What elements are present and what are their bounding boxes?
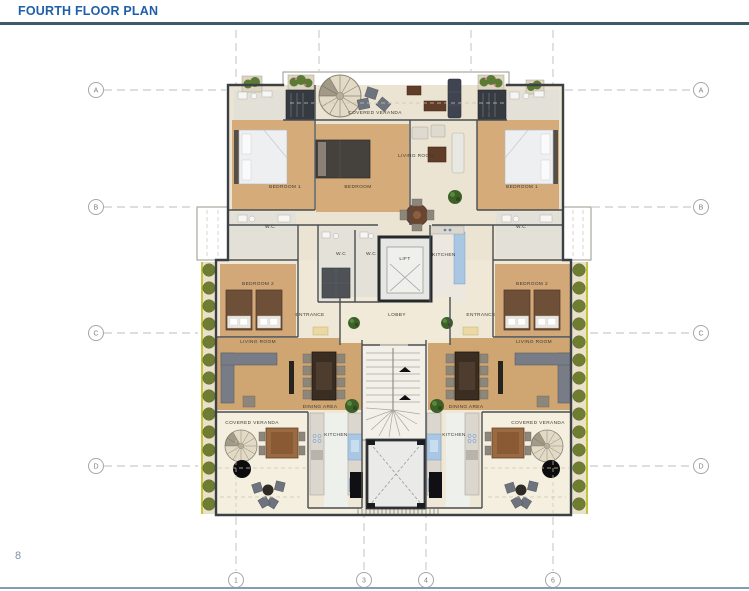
grid-marker-row-b-left: B — [89, 200, 104, 215]
wardrobe — [478, 90, 506, 120]
room-label-bedroom-middle: BEDROOM — [344, 184, 371, 190]
door-mat — [463, 327, 478, 335]
room-label-veranda-bottom-left: COVERED VERANDA — [225, 420, 279, 426]
svg-text:C: C — [93, 331, 98, 338]
armchair — [412, 127, 428, 139]
grid-marker-row-b-right: B — [694, 200, 709, 215]
room-label-living-bottom-right: LIVING ROOM — [516, 339, 552, 345]
room-label-bedroom2-right: BEDROOM 2 — [516, 281, 548, 287]
footer-rule — [0, 587, 749, 589]
door-mat — [313, 327, 328, 335]
entrance-hatch — [358, 509, 438, 514]
room-label-dining-right: DINING AREA — [449, 404, 484, 410]
room-label-wc-mid-right: W.C — [516, 224, 526, 230]
grid-marker-row-a-left: A — [89, 83, 104, 98]
svg-text:4: 4 — [424, 578, 428, 585]
room-label-wc-top-right: W.C — [485, 109, 495, 115]
coffee-table — [424, 101, 446, 111]
floor-plan-drawing: A B C D A B C D 1 3 4 6 — [0, 0, 749, 591]
room-label-lobby: LOBBY — [388, 312, 406, 318]
side-table — [407, 86, 421, 95]
page-number: 8 — [15, 550, 21, 562]
svg-text:A: A — [94, 88, 99, 95]
dark-planter — [429, 472, 442, 498]
balcony-left — [197, 207, 228, 260]
room-label-kitchen-bottom-left: KITCHEN — [324, 432, 348, 438]
room-label-veranda-top: COVERED VERANDA — [348, 110, 402, 116]
room-label-living-top: LIVING ROOM — [398, 153, 434, 159]
armchair — [431, 125, 445, 137]
grid-marker-row-d-left: D — [89, 459, 104, 474]
svg-text:A: A — [699, 88, 704, 95]
grid-marker-col-3: 3 — [357, 573, 372, 588]
kitchen-counter — [454, 232, 465, 284]
room-label-bedroom1-right: BEDROOM 1 — [506, 184, 538, 190]
grid-marker-row-a-right: A — [694, 83, 709, 98]
svg-text:D: D — [698, 464, 703, 471]
room-label-bedroom1-left: BEDROOM 1 — [269, 184, 301, 190]
grid-marker-col-4: 4 — [419, 573, 434, 588]
stairwell — [362, 345, 426, 440]
tv-unit — [498, 361, 503, 394]
grid-marker-col-6: 6 — [546, 573, 561, 588]
room-label-bedroom2-left: BEDROOM 2 — [242, 281, 274, 287]
brochure-page: FOURTH FLOOR PLAN — [0, 0, 749, 591]
svg-text:3: 3 — [362, 578, 366, 585]
room-label-veranda-bottom-right: COVERED VERANDA — [511, 420, 565, 426]
grid-marker-row-d-right: D — [694, 459, 709, 474]
room-label-wc-core-right: W.C — [366, 251, 376, 257]
room-label-lift: LIFT — [399, 256, 410, 262]
tv-unit — [289, 361, 294, 394]
balcony-right — [563, 207, 591, 260]
svg-text:C: C — [698, 331, 703, 338]
wardrobe — [286, 90, 314, 120]
grid-marker-row-c-left: C — [89, 326, 104, 341]
sofa — [452, 133, 464, 173]
column — [542, 460, 560, 478]
svg-text:D: D — [93, 464, 98, 471]
svg-text:6: 6 — [551, 578, 555, 585]
room-label-kitchen-bottom-right: KITCHEN — [442, 432, 466, 438]
grid-marker-row-c-right: C — [694, 326, 709, 341]
svg-text:B: B — [699, 205, 704, 212]
room-label-living-bottom-left: LIVING ROOM — [240, 339, 276, 345]
room-label-wc-core-left: W.C — [336, 251, 346, 257]
room-label-dining-left: DINING AREA — [303, 404, 338, 410]
room-label-entrance-right: ENTRANCE — [466, 312, 495, 318]
room-label-wc-top-left: W.C — [298, 109, 308, 115]
room-label-entrance-left: ENTRANCE — [295, 312, 324, 318]
svg-text:B: B — [94, 205, 99, 212]
room-label-kitchen-upper: KITCHEN — [432, 252, 456, 258]
room-label-wc-mid-left: W.C — [265, 224, 275, 230]
dark-planter — [350, 472, 363, 498]
grid-marker-col-1: 1 — [229, 573, 244, 588]
svg-text:1: 1 — [234, 578, 238, 585]
sofa — [448, 79, 461, 118]
